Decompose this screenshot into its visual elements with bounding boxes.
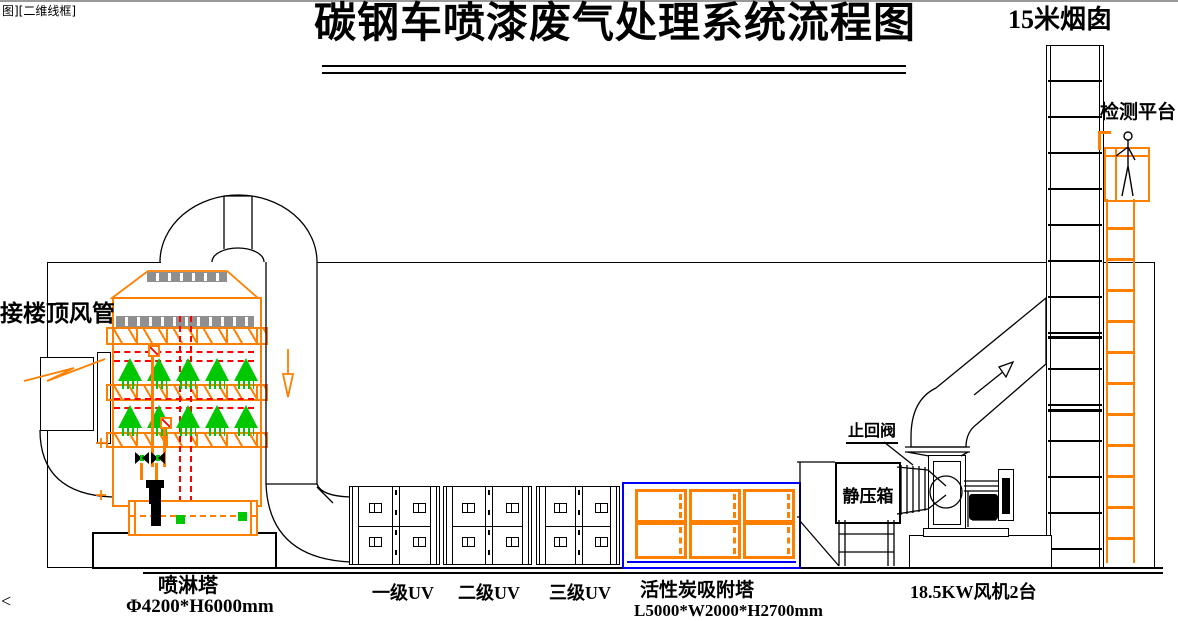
worker-figure <box>1116 132 1135 196</box>
fan-outlet-flange <box>905 447 970 456</box>
down-duct <box>266 262 317 484</box>
duct-elbow-to-uv <box>266 484 350 562</box>
corner-mark: < <box>1 592 11 611</box>
carbon-plenum-transition <box>797 462 839 566</box>
carbon-name: 活性炭吸附塔 <box>640 581 754 601</box>
cad-flow-diagram: 图][二维线框] < 碳钢车喷漆废气处理系统流程图 15米烟囱 检测平台 接楼顶… <box>0 0 1178 621</box>
fan-shaft-frame <box>964 481 998 527</box>
viewport-style-label: 图][二维线框] <box>2 5 76 18</box>
worker-head <box>1124 132 1132 140</box>
uv3-label: 三级UV <box>549 584 611 603</box>
carbon-size: L5000*W2000*H2700mm <box>634 602 823 620</box>
roof-duct-label: 接楼顶风管 <box>0 302 115 326</box>
uv1-label: 一级UV <box>372 584 434 603</box>
spray-tower-size: Φ4200*H6000mm <box>126 597 274 617</box>
inlet-pipe-cross-marks <box>96 438 106 500</box>
page-title: 碳钢车喷漆废气处理系统流程图 <box>300 2 930 46</box>
uv2-label: 二级UV <box>458 584 520 603</box>
check-valve-label: 止回阀 <box>846 424 898 444</box>
duct-lineart <box>0 0 1178 621</box>
worker-body <box>1116 140 1135 196</box>
check-valve-flex-rings <box>897 465 946 515</box>
plenum-legs <box>839 520 894 566</box>
fan-label: 18.5KW风机2台 <box>910 583 1037 602</box>
check-valve-leader <box>884 442 913 465</box>
chimney-label: 15米烟囱 <box>1008 6 1112 33</box>
roof-duct-zigzag-arrow <box>24 359 105 381</box>
platform-label: 检测平台 <box>1100 103 1176 123</box>
fan-discharge-duct <box>911 298 1046 447</box>
spray-tower-name: 喷淋塔 <box>158 576 218 597</box>
tower-hood <box>112 271 258 298</box>
down-arrow-head <box>283 374 293 397</box>
